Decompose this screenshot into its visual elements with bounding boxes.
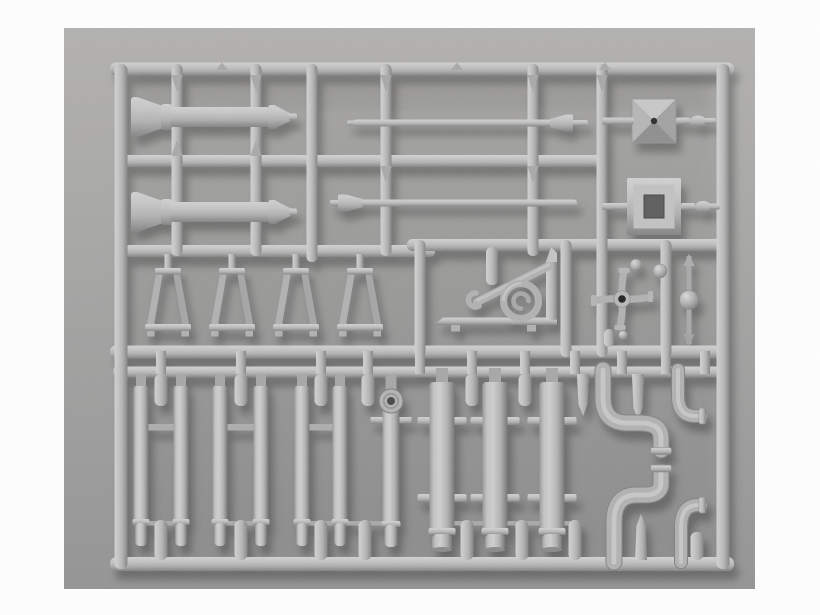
film-grain-overlay (64, 28, 755, 589)
sprue-photo-svg (0, 0, 820, 615)
model-sprue-photo (0, 0, 820, 615)
